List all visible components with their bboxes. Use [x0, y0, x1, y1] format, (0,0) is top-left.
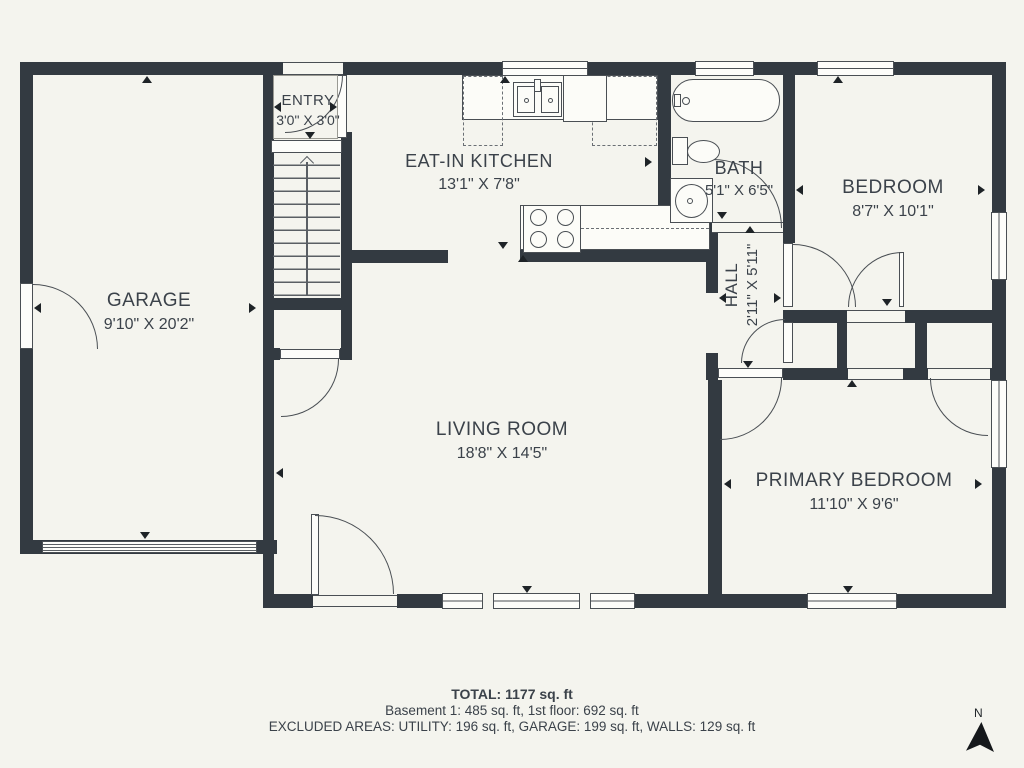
stairs-direction-line — [306, 162, 308, 296]
stove-burner — [530, 231, 547, 248]
wall — [905, 310, 1006, 323]
entry-label: ENTRY 3'0" X 3'0" — [263, 92, 353, 129]
front-door-opening — [313, 595, 397, 607]
stair-closet-door-arc — [281, 359, 339, 417]
dim-arrow — [743, 361, 753, 368]
wall — [894, 62, 1006, 75]
primary-door-leaf — [718, 368, 783, 378]
room-dims: 9'10" X 20'2" — [59, 315, 239, 335]
window — [807, 593, 897, 609]
wall — [635, 594, 712, 608]
primary-bedroom-label: PRIMARY BEDROOM 11'10" X 9'6" — [734, 469, 974, 515]
stair-landing — [271, 140, 342, 153]
bedroom-door-leaf — [783, 243, 793, 307]
stove-burner — [557, 209, 574, 226]
garage-label: GARAGE 9'10" X 20'2" — [59, 289, 239, 335]
wall — [712, 594, 807, 608]
room-name: PRIMARY BEDROOM — [734, 469, 974, 493]
floor-areas: Basement 1: 485 sq. ft, 1st floor: 692 s… — [0, 703, 1024, 718]
sink-drain — [548, 98, 553, 103]
room-name: ENTRY — [263, 92, 353, 111]
dim-arrow — [645, 157, 652, 167]
sink-drain — [524, 98, 529, 103]
window — [493, 593, 580, 609]
stove-burner — [557, 231, 574, 248]
room-name: GARAGE — [59, 289, 239, 313]
hall-label: HALL 2'11" X 5'11" — [721, 215, 763, 355]
room-name: BATH — [664, 157, 814, 180]
wall — [20, 349, 33, 554]
room-dims: 8'7" X 10'1" — [793, 202, 993, 222]
primary-closet-door-arc — [930, 378, 988, 436]
room-name: HALL — [721, 215, 742, 355]
bedroom-door-arc — [793, 244, 856, 307]
wall — [783, 368, 848, 380]
room-dims: 5'1" X 6'5" — [664, 182, 814, 201]
wall — [263, 348, 280, 360]
dim-arrow — [843, 586, 853, 593]
garage-side-door-leaf — [20, 283, 33, 349]
wall — [350, 250, 448, 263]
area-summary: TOTAL: 1177 sq. ft Basement 1: 485 sq. f… — [0, 686, 1024, 734]
dim-arrow — [882, 299, 892, 306]
stove-burner — [530, 209, 547, 226]
counter-dashed-line — [581, 228, 709, 229]
wall — [903, 368, 928, 380]
dim-arrow — [498, 242, 508, 249]
wall — [897, 594, 1006, 608]
wall — [341, 132, 352, 360]
front-door-arc — [315, 515, 394, 594]
room-name: EAT-IN KITCHEN — [379, 150, 579, 173]
room-dims: 11'10" X 9'6" — [734, 495, 974, 515]
tub-faucet-knob — [682, 97, 690, 105]
dim-arrow — [724, 479, 731, 489]
bedroom-closet-opening — [847, 310, 905, 323]
refrigerator — [563, 75, 607, 122]
wall — [992, 280, 1006, 380]
kitchen-label: EAT-IN KITCHEN 13'1" X 7'8" — [379, 150, 579, 195]
compass-label: N — [974, 706, 983, 720]
dim-arrow — [833, 76, 843, 83]
total-area: TOTAL: 1177 sq. ft — [0, 686, 1024, 702]
primary-door-arc — [720, 378, 782, 440]
wall — [915, 323, 927, 368]
bath-label: BATH 5'1" X 6'5" — [664, 157, 814, 200]
room-dims: 3'0" X 3'0" — [263, 112, 353, 130]
wall — [397, 594, 442, 608]
room-dims: 18'8" X 14'5" — [402, 444, 602, 464]
window — [502, 61, 588, 76]
wall — [992, 468, 1006, 608]
wall — [992, 62, 1006, 212]
kitchen-faucet — [534, 79, 541, 92]
dim-arrow — [276, 468, 283, 478]
living-room-label: LIVING ROOM 18'8" X 14'5" — [402, 418, 602, 464]
window — [695, 61, 754, 76]
dim-arrow — [847, 380, 857, 387]
dim-arrow — [142, 76, 152, 83]
dim-arrow — [140, 532, 150, 539]
wall — [588, 62, 695, 75]
stair-closet-door-leaf — [280, 349, 340, 359]
floor-plan: GARAGE 9'10" X 20'2" ENTRY 3'0" X 3'0" E… — [0, 0, 1024, 768]
dim-arrow — [522, 586, 532, 593]
upper-cabinet — [463, 76, 503, 146]
wall — [837, 323, 847, 368]
garage-door — [42, 541, 257, 553]
wall — [20, 62, 283, 75]
dim-arrow — [500, 76, 510, 83]
dim-arrow — [975, 479, 982, 489]
closet-opening — [848, 368, 903, 380]
window — [442, 593, 483, 609]
wall — [706, 368, 718, 380]
dim-arrow — [518, 255, 528, 262]
wall — [340, 348, 352, 360]
wall — [20, 62, 33, 283]
bedroom-closet-door-arc — [848, 252, 903, 307]
dim-arrow — [305, 132, 315, 139]
room-dims: 2'11" X 5'11" — [744, 215, 763, 355]
room-dims: 13'1" X 7'8" — [379, 175, 579, 195]
dim-arrow — [34, 303, 41, 313]
window — [590, 593, 635, 609]
window — [991, 212, 1007, 280]
entry-door-opening — [283, 62, 343, 75]
room-name: LIVING ROOM — [402, 418, 602, 442]
window — [991, 380, 1007, 468]
wall — [990, 368, 1006, 380]
dim-arrow — [249, 303, 256, 313]
window — [817, 61, 894, 76]
room-name: BEDROOM — [793, 176, 993, 200]
tub-faucet — [674, 94, 681, 107]
dim-arrow — [774, 293, 781, 303]
wall — [343, 62, 502, 75]
wall — [263, 298, 352, 310]
excluded-areas: EXCLUDED AREAS: UTILITY: 196 sq. ft, GAR… — [0, 719, 1024, 734]
bedroom-label: BEDROOM 8'7" X 10'1" — [793, 176, 993, 222]
